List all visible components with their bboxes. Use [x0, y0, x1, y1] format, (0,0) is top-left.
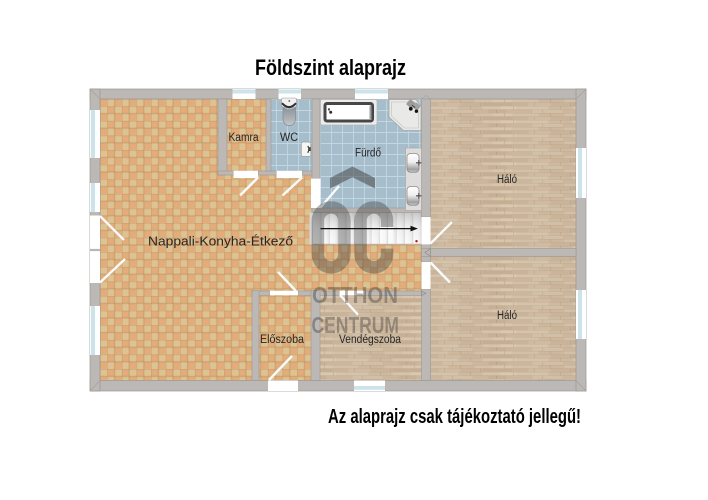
svg-text:WC: WC — [280, 132, 298, 144]
svg-text:Háló: Háló — [497, 174, 517, 186]
svg-text:Földszint alaprajz: Földszint alaprajz — [255, 55, 406, 80]
svg-text:Fürdő: Fürdő — [355, 148, 381, 160]
svg-text:Kamra: Kamra — [229, 132, 260, 144]
svg-text:Nappali-Konyha-Étkező: Nappali-Konyha-Étkező — [148, 234, 293, 249]
svg-text:Háló: Háló — [497, 310, 517, 322]
svg-text:Az alaprajz csak tájékoztató j: Az alaprajz csak tájékoztató jellegű! — [328, 406, 581, 428]
svg-text:OTTHON: OTTHON — [312, 282, 398, 308]
svg-text:Előszoba: Előszoba — [260, 334, 305, 346]
svg-text:Vendégszoba: Vendégszoba — [339, 334, 402, 346]
